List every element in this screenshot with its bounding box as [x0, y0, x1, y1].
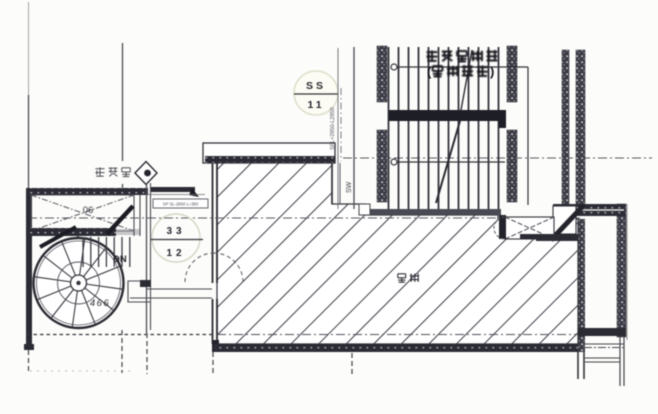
svg-text:): ): [490, 64, 494, 79]
svg-text:33: 33: [166, 226, 185, 237]
svg-text:06: 06: [83, 205, 94, 216]
svg-text:466: 466: [90, 298, 110, 309]
svg-text:11: 11: [307, 99, 324, 111]
svg-text:SFL+2850-L2850: SFL+2850-L2850: [330, 107, 336, 150]
svg-text:SW: SW: [346, 181, 353, 193]
svg-text:12: 12: [166, 248, 185, 259]
svg-text:SS: SS: [306, 80, 326, 92]
svg-text:(: (: [427, 64, 432, 79]
svg-text:DN: DN: [113, 254, 127, 265]
svg-text:SP SL-2650 L=350: SP SL-2650 L=350: [163, 202, 199, 207]
